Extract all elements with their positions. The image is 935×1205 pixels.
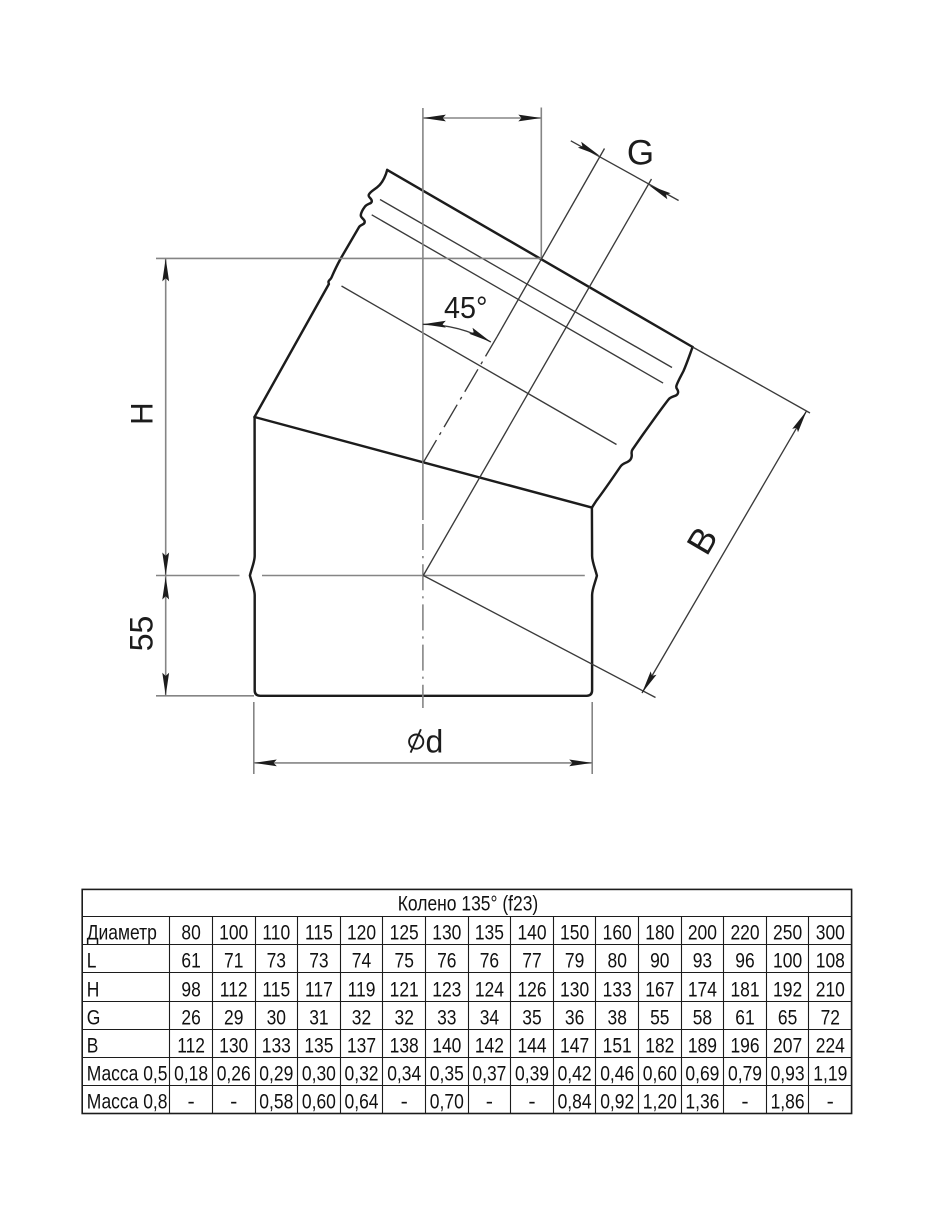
svg-text:0,64: 0,64 bbox=[345, 1090, 379, 1114]
svg-text:73: 73 bbox=[267, 949, 286, 973]
svg-text:0,58: 0,58 bbox=[259, 1090, 293, 1114]
svg-text:Масса 0,5: Масса 0,5 bbox=[87, 1062, 168, 1086]
svg-text:180: 180 bbox=[645, 921, 674, 945]
svg-text:0,42: 0,42 bbox=[558, 1062, 592, 1086]
svg-text:137: 137 bbox=[347, 1034, 376, 1058]
svg-text:55: 55 bbox=[124, 616, 160, 652]
svg-text:210: 210 bbox=[816, 978, 845, 1002]
svg-text:189: 189 bbox=[688, 1034, 717, 1058]
svg-text:0,18: 0,18 bbox=[174, 1062, 208, 1086]
svg-text:31: 31 bbox=[309, 1006, 328, 1030]
svg-text:35: 35 bbox=[522, 1006, 541, 1030]
svg-text:192: 192 bbox=[773, 978, 802, 1002]
svg-text:0,46: 0,46 bbox=[600, 1062, 634, 1086]
svg-text:110: 110 bbox=[262, 921, 290, 945]
svg-text:71: 71 bbox=[224, 949, 243, 973]
svg-text:0,37: 0,37 bbox=[472, 1062, 506, 1086]
svg-text:58: 58 bbox=[693, 1006, 712, 1030]
svg-text:125: 125 bbox=[390, 921, 419, 945]
svg-text:0,30: 0,30 bbox=[302, 1062, 336, 1086]
svg-text:26: 26 bbox=[181, 1006, 200, 1030]
svg-text:140: 140 bbox=[432, 1034, 461, 1058]
svg-text:80: 80 bbox=[181, 921, 201, 945]
svg-text:-: - bbox=[827, 1090, 834, 1114]
svg-text:29: 29 bbox=[224, 1006, 243, 1030]
svg-text:138: 138 bbox=[390, 1034, 419, 1058]
svg-text:196: 196 bbox=[730, 1034, 759, 1058]
svg-text:-: - bbox=[741, 1090, 748, 1114]
svg-text:142: 142 bbox=[475, 1034, 504, 1058]
svg-text:100: 100 bbox=[219, 921, 248, 945]
svg-text:140: 140 bbox=[517, 921, 546, 945]
svg-text:0,84: 0,84 bbox=[558, 1090, 592, 1114]
svg-text:d: d bbox=[426, 724, 444, 760]
svg-text:250: 250 bbox=[773, 921, 802, 945]
svg-text:0,26: 0,26 bbox=[217, 1062, 251, 1086]
svg-text:160: 160 bbox=[603, 921, 632, 945]
svg-text:32: 32 bbox=[395, 1006, 414, 1030]
svg-text:75: 75 bbox=[395, 949, 414, 973]
svg-text:34: 34 bbox=[480, 1006, 500, 1030]
svg-text:133: 133 bbox=[262, 1034, 291, 1058]
svg-text:108: 108 bbox=[816, 949, 845, 973]
svg-text:-: - bbox=[230, 1090, 237, 1114]
svg-text:61: 61 bbox=[181, 949, 200, 973]
svg-text:207: 207 bbox=[773, 1034, 802, 1058]
svg-text:93: 93 bbox=[693, 949, 712, 973]
svg-text:133: 133 bbox=[603, 978, 632, 1002]
svg-text:200: 200 bbox=[688, 921, 717, 945]
svg-text:151: 151 bbox=[603, 1034, 632, 1058]
svg-text:119: 119 bbox=[348, 978, 376, 1002]
svg-text:147: 147 bbox=[560, 1034, 589, 1058]
svg-text:98: 98 bbox=[181, 978, 200, 1002]
svg-text:182: 182 bbox=[645, 1034, 674, 1058]
svg-text:30: 30 bbox=[267, 1006, 287, 1030]
svg-text:H: H bbox=[87, 978, 100, 1002]
svg-text:61: 61 bbox=[735, 1006, 754, 1030]
svg-text:33: 33 bbox=[437, 1006, 456, 1030]
svg-text:74: 74 bbox=[352, 949, 372, 973]
svg-text:73: 73 bbox=[309, 949, 328, 973]
svg-text:32: 32 bbox=[352, 1006, 371, 1030]
svg-text:0,92: 0,92 bbox=[600, 1090, 634, 1114]
svg-text:1,36: 1,36 bbox=[685, 1090, 719, 1114]
svg-text:0,35: 0,35 bbox=[430, 1062, 464, 1086]
svg-text:Диаметр: Диаметр bbox=[87, 921, 157, 945]
svg-text:135: 135 bbox=[475, 921, 504, 945]
svg-text:80: 80 bbox=[608, 949, 628, 973]
svg-text:H: H bbox=[124, 402, 160, 425]
svg-text:G: G bbox=[627, 134, 654, 173]
svg-text:112: 112 bbox=[220, 978, 248, 1002]
svg-text:121: 121 bbox=[390, 978, 419, 1002]
svg-text:L: L bbox=[87, 949, 97, 973]
svg-text:-: - bbox=[401, 1090, 408, 1114]
svg-text:79: 79 bbox=[565, 949, 584, 973]
svg-text:0,34: 0,34 bbox=[387, 1062, 421, 1086]
svg-text:0,60: 0,60 bbox=[302, 1090, 336, 1114]
svg-text:130: 130 bbox=[432, 921, 461, 945]
svg-text:0,70: 0,70 bbox=[430, 1090, 464, 1114]
svg-text:123: 123 bbox=[432, 978, 461, 1002]
svg-text:72: 72 bbox=[821, 1006, 840, 1030]
svg-text:220: 220 bbox=[730, 921, 759, 945]
svg-text:1,86: 1,86 bbox=[771, 1090, 805, 1114]
svg-text:135: 135 bbox=[304, 1034, 333, 1058]
svg-text:76: 76 bbox=[437, 949, 456, 973]
svg-text:144: 144 bbox=[517, 1034, 546, 1058]
svg-text:0,60: 0,60 bbox=[643, 1062, 677, 1086]
svg-text:G: G bbox=[87, 1006, 101, 1030]
svg-text:130: 130 bbox=[560, 978, 589, 1002]
svg-text:224: 224 bbox=[816, 1034, 845, 1058]
svg-text:115: 115 bbox=[262, 978, 290, 1002]
svg-text:112: 112 bbox=[177, 1034, 205, 1058]
svg-text:55: 55 bbox=[650, 1006, 669, 1030]
svg-text:96: 96 bbox=[735, 949, 754, 973]
svg-text:174: 174 bbox=[688, 978, 717, 1002]
svg-text:0,32: 0,32 bbox=[345, 1062, 379, 1086]
svg-text:115: 115 bbox=[305, 921, 333, 945]
svg-text:38: 38 bbox=[608, 1006, 627, 1030]
svg-text:-: - bbox=[188, 1090, 195, 1114]
svg-text:36: 36 bbox=[565, 1006, 584, 1030]
svg-text:0,69: 0,69 bbox=[685, 1062, 719, 1086]
svg-text:150: 150 bbox=[560, 921, 589, 945]
svg-text:0,79: 0,79 bbox=[728, 1062, 762, 1086]
svg-text:1,20: 1,20 bbox=[643, 1090, 677, 1114]
svg-text:0,93: 0,93 bbox=[771, 1062, 805, 1086]
svg-text:90: 90 bbox=[650, 949, 670, 973]
svg-text:Колено 135° (f23): Колено 135° (f23) bbox=[398, 892, 539, 916]
svg-text:B: B bbox=[87, 1034, 99, 1058]
svg-text:130: 130 bbox=[219, 1034, 248, 1058]
svg-text:181: 181 bbox=[730, 978, 759, 1002]
svg-text:0,29: 0,29 bbox=[259, 1062, 293, 1086]
svg-text:100: 100 bbox=[773, 949, 802, 973]
svg-text:300: 300 bbox=[816, 921, 845, 945]
svg-text:124: 124 bbox=[475, 978, 504, 1002]
svg-text:0,39: 0,39 bbox=[515, 1062, 549, 1086]
svg-text:45°: 45° bbox=[444, 290, 488, 325]
svg-text:-: - bbox=[528, 1090, 535, 1114]
svg-text:120: 120 bbox=[347, 921, 376, 945]
svg-text:167: 167 bbox=[645, 978, 674, 1002]
svg-text:Масса 0,8: Масса 0,8 bbox=[87, 1090, 168, 1114]
svg-text:76: 76 bbox=[480, 949, 499, 973]
svg-text:-: - bbox=[486, 1090, 493, 1114]
svg-text:1,19: 1,19 bbox=[813, 1062, 847, 1086]
svg-text:126: 126 bbox=[517, 978, 546, 1002]
svg-text:77: 77 bbox=[522, 949, 541, 973]
svg-text:117: 117 bbox=[305, 978, 333, 1002]
svg-text:65: 65 bbox=[778, 1006, 797, 1030]
